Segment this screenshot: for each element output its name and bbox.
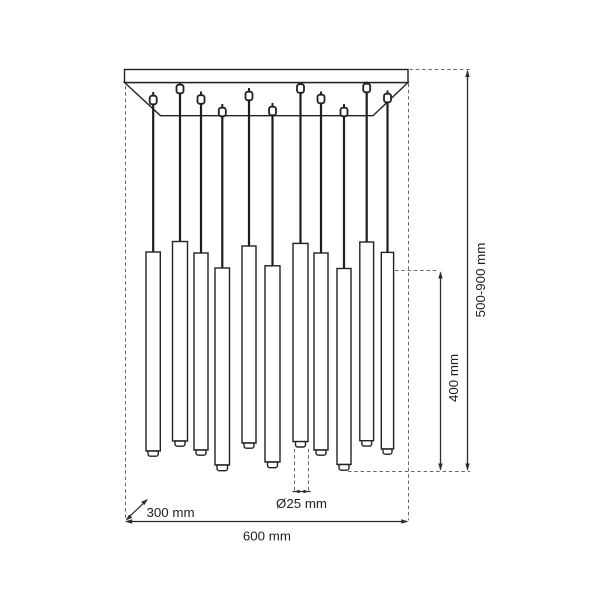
svg-text:500-900 mm: 500-900 mm — [473, 243, 488, 318]
svg-text:400 mm: 400 mm — [446, 354, 461, 402]
svg-text:300 mm: 300 mm — [147, 505, 195, 520]
svg-text:Ø25 mm: Ø25 mm — [276, 496, 327, 511]
svg-text:600 mm: 600 mm — [243, 529, 291, 544]
